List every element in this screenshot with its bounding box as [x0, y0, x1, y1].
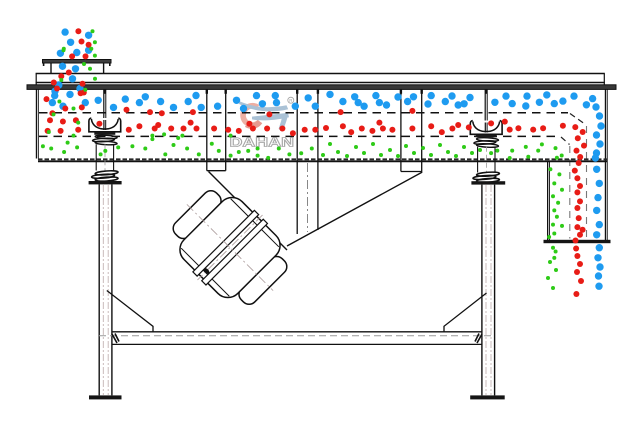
svg-text:DAHAN: DAHAN	[230, 135, 295, 149]
svg-text:R: R	[289, 98, 292, 103]
